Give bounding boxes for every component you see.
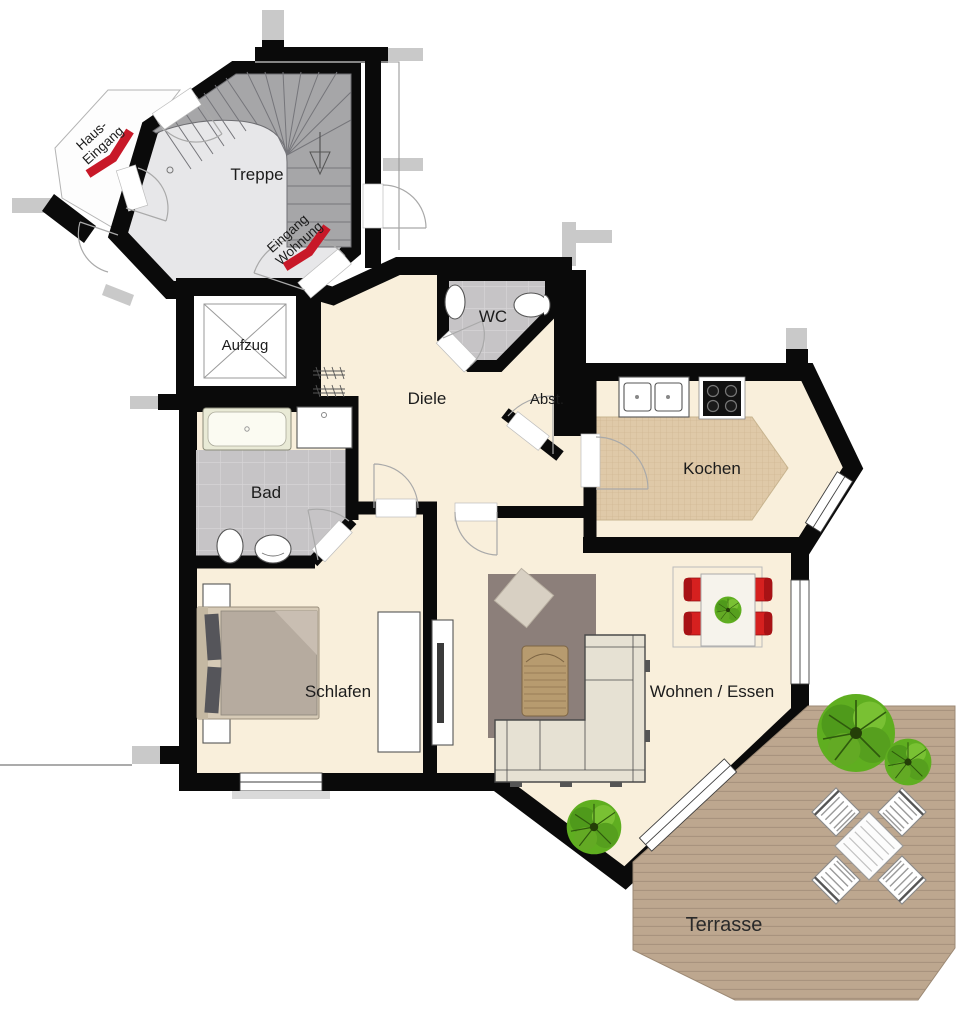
window-wohnen-right — [791, 580, 809, 684]
label-aufzug: Aufzug — [222, 337, 269, 354]
wall-chunk — [554, 270, 586, 436]
stove — [699, 377, 745, 419]
label-terrasse: Terrasse — [686, 914, 763, 936]
door-gap — [455, 503, 497, 521]
toilet — [217, 529, 243, 563]
label-schlafen: Schlafen — [305, 682, 371, 701]
wardrobe — [378, 612, 420, 752]
label-wohnen-essen: Wohnen / Essen — [650, 682, 774, 701]
floor-plan: Treppe Aufzug Diele WC Abst. Kochen Bad … — [0, 0, 975, 1024]
tv — [437, 643, 444, 723]
kitchen-sink — [619, 377, 689, 417]
table-plant — [714, 596, 741, 623]
label-kochen: Kochen — [683, 459, 741, 478]
bidet — [255, 535, 291, 563]
coffee-table — [522, 646, 568, 716]
door-gap — [376, 499, 416, 517]
terrace-plant — [885, 739, 932, 786]
label-wc: WC — [479, 307, 507, 326]
window-schlafen — [232, 773, 330, 799]
label-abst: Abst. — [530, 391, 564, 408]
nightstand — [203, 716, 230, 743]
door-gap — [581, 434, 600, 487]
terrace-plant — [817, 694, 895, 772]
label-bad: Bad — [251, 483, 281, 502]
wc-washbasin — [445, 285, 465, 319]
floor-plan-page: Treppe Aufzug Diele WC Abst. Kochen Bad … — [0, 0, 975, 1024]
wc-toilet — [514, 293, 550, 317]
bed — [197, 607, 319, 719]
label-diele: Diele — [408, 389, 447, 408]
washbasin — [297, 407, 352, 448]
door-gap — [363, 184, 383, 228]
tv-sideboard — [432, 620, 453, 745]
plant — [567, 800, 622, 855]
bathtub — [203, 408, 291, 450]
label-treppe: Treppe — [230, 165, 283, 184]
